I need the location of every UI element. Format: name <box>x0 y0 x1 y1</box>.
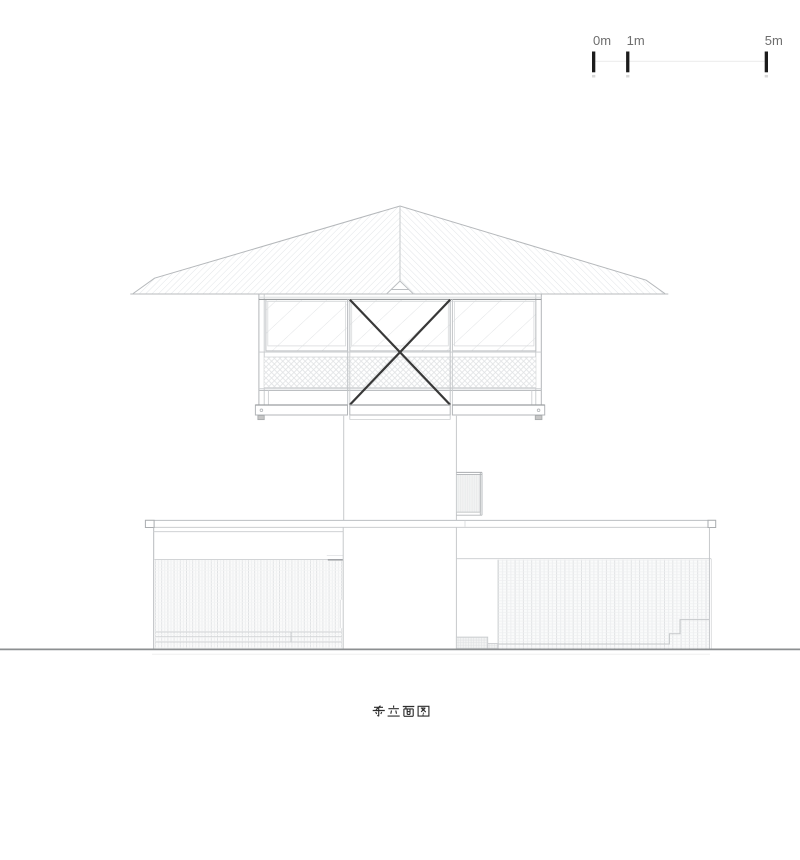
svg-text:1m: 1m <box>627 33 645 48</box>
svg-text:0m: 0m <box>593 33 611 48</box>
svg-text:5m: 5m <box>765 33 783 48</box>
